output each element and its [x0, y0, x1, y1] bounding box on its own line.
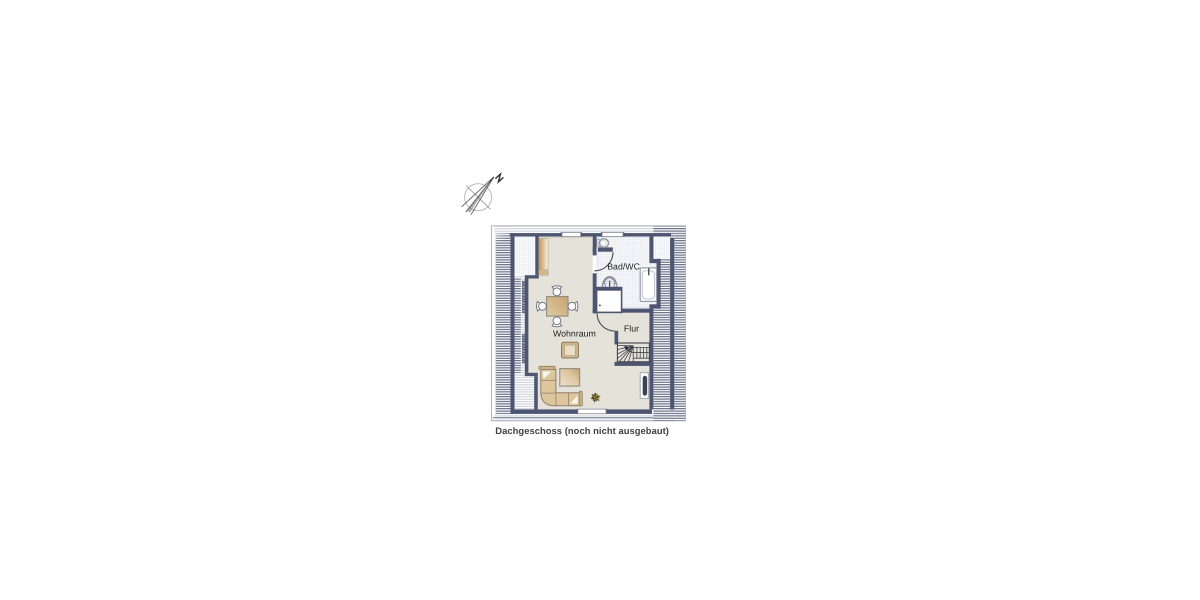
svg-text:Wohnraum: Wohnraum [553, 328, 596, 338]
svg-text:Bad/WC: Bad/WC [607, 262, 640, 272]
svg-text:Dachgeschoss (noch nicht ausg: Dachgeschoss (noch nicht ausgebaut) [495, 425, 669, 436]
svg-text:Flur: Flur [624, 323, 639, 333]
